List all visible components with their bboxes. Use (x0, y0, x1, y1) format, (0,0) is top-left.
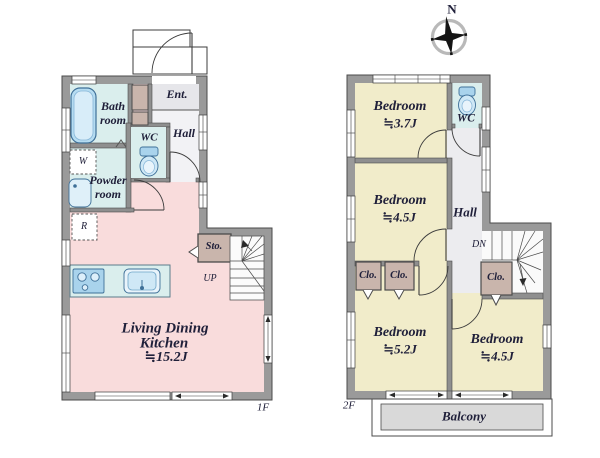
hall-2f-label: Hall (453, 206, 477, 219)
shoe-cabinet (132, 85, 148, 110)
shoe-cabinet (132, 112, 148, 125)
bedroom1-name-label: Bedroom (374, 100, 427, 114)
ldk-label-line1: Living Dining (121, 322, 208, 337)
compass-icon (428, 14, 470, 58)
bedroom2-size-label: ≒4.5J (382, 211, 416, 224)
compass-north-label: N (447, 3, 456, 16)
storage-label: Sto. (206, 242, 223, 253)
stairs-1f (230, 236, 264, 300)
floorplan-page: N Bath room Ent. Hall WC W Powder room R… (0, 0, 600, 458)
bathroom-label-line2: room (100, 114, 126, 126)
closet2-label: Clo. (390, 271, 408, 282)
floor1-label: 1F (257, 403, 269, 414)
bedroom2-name-label: Bedroom (374, 194, 427, 208)
hall-1f-label: Hall (173, 127, 195, 139)
wc-2f-label: WC (457, 113, 475, 125)
powder-room-label-line2: room (95, 188, 121, 200)
bedroom3-size-label: ≒5.2J (383, 343, 417, 356)
bathroom-label-line1: Bath (101, 100, 125, 112)
balcony-label: Balcony (442, 410, 486, 423)
closet1-label: Clo. (359, 271, 377, 282)
closet3-label: Clo. (487, 273, 505, 284)
floor2-label: 2F (343, 401, 355, 412)
bedroom1-size-label: ≒3.7J (383, 117, 417, 130)
toilet-icon-2f (459, 87, 476, 115)
vanity-sink-icon (69, 179, 91, 207)
ldk-size-label: ≒15.2J (144, 351, 187, 365)
bedroom4-size-label: ≒4.5J (480, 350, 514, 363)
stairs-down-label: DN (472, 240, 486, 250)
entrance-label: Ent. (166, 88, 187, 100)
kitchen-counter (70, 265, 170, 297)
fridge-label: R (81, 222, 87, 232)
bathtub-icon (71, 88, 96, 143)
wc-1f-label: WC (140, 133, 157, 144)
floor2-plan (347, 75, 552, 436)
floorplan-graphic (0, 0, 600, 458)
stairs-up-label: UP (203, 274, 216, 284)
stove-icon (73, 269, 104, 293)
powder-room-label-line1: Powder (89, 174, 126, 186)
sink-icon (124, 269, 160, 293)
bedroom4-name-label: Bedroom (471, 333, 524, 347)
toilet-icon-1f (140, 147, 158, 176)
bedroom3-name-label: Bedroom (374, 326, 427, 340)
washer-label: W (79, 157, 87, 167)
entrance-porch (133, 30, 207, 74)
